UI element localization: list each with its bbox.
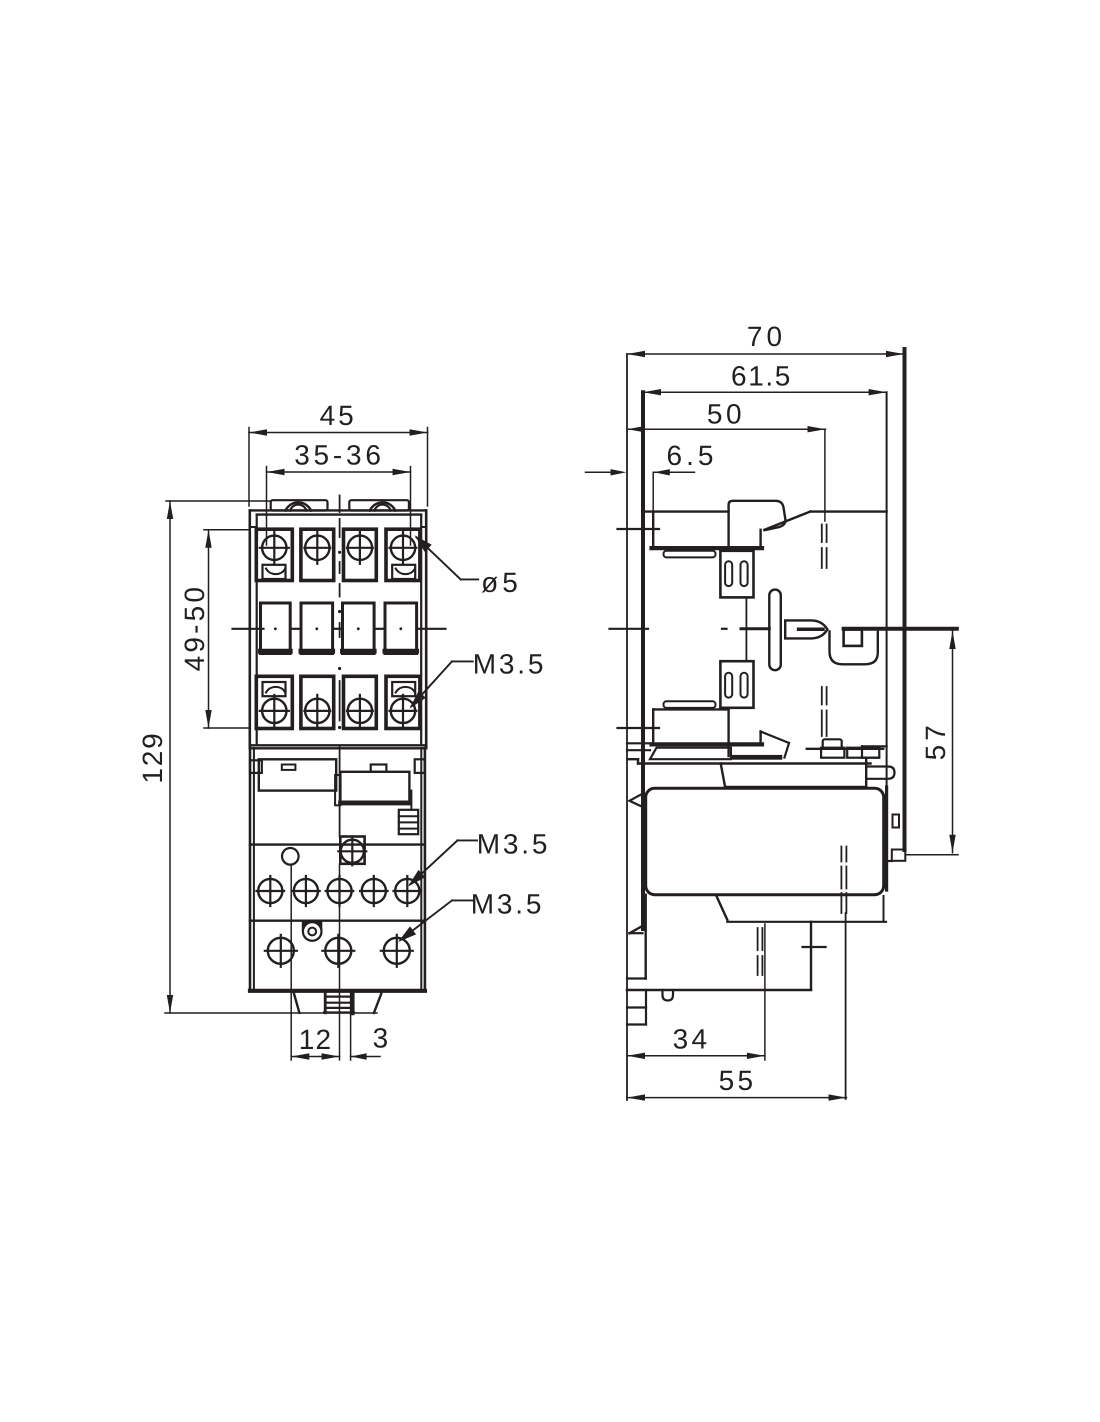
svg-text:6.5: 6.5 bbox=[667, 440, 718, 471]
svg-text:50: 50 bbox=[707, 399, 745, 430]
svg-text:45: 45 bbox=[320, 400, 357, 431]
svg-text:34: 34 bbox=[673, 1024, 711, 1055]
svg-text:129: 129 bbox=[137, 731, 168, 783]
svg-text:55: 55 bbox=[719, 1065, 757, 1096]
svg-text:35-36: 35-36 bbox=[294, 439, 385, 470]
svg-text:57: 57 bbox=[920, 721, 951, 760]
svg-text:12: 12 bbox=[299, 1024, 333, 1055]
svg-text:M3.5: M3.5 bbox=[477, 829, 550, 860]
svg-text:49-50: 49-50 bbox=[179, 584, 210, 672]
svg-text:M3.5: M3.5 bbox=[473, 649, 546, 680]
svg-text:3: 3 bbox=[373, 1023, 390, 1054]
svg-text:70: 70 bbox=[747, 321, 786, 352]
svg-text:ø5: ø5 bbox=[481, 567, 522, 598]
svg-text:61.5: 61.5 bbox=[731, 361, 792, 392]
svg-text:M3.5: M3.5 bbox=[471, 889, 544, 920]
